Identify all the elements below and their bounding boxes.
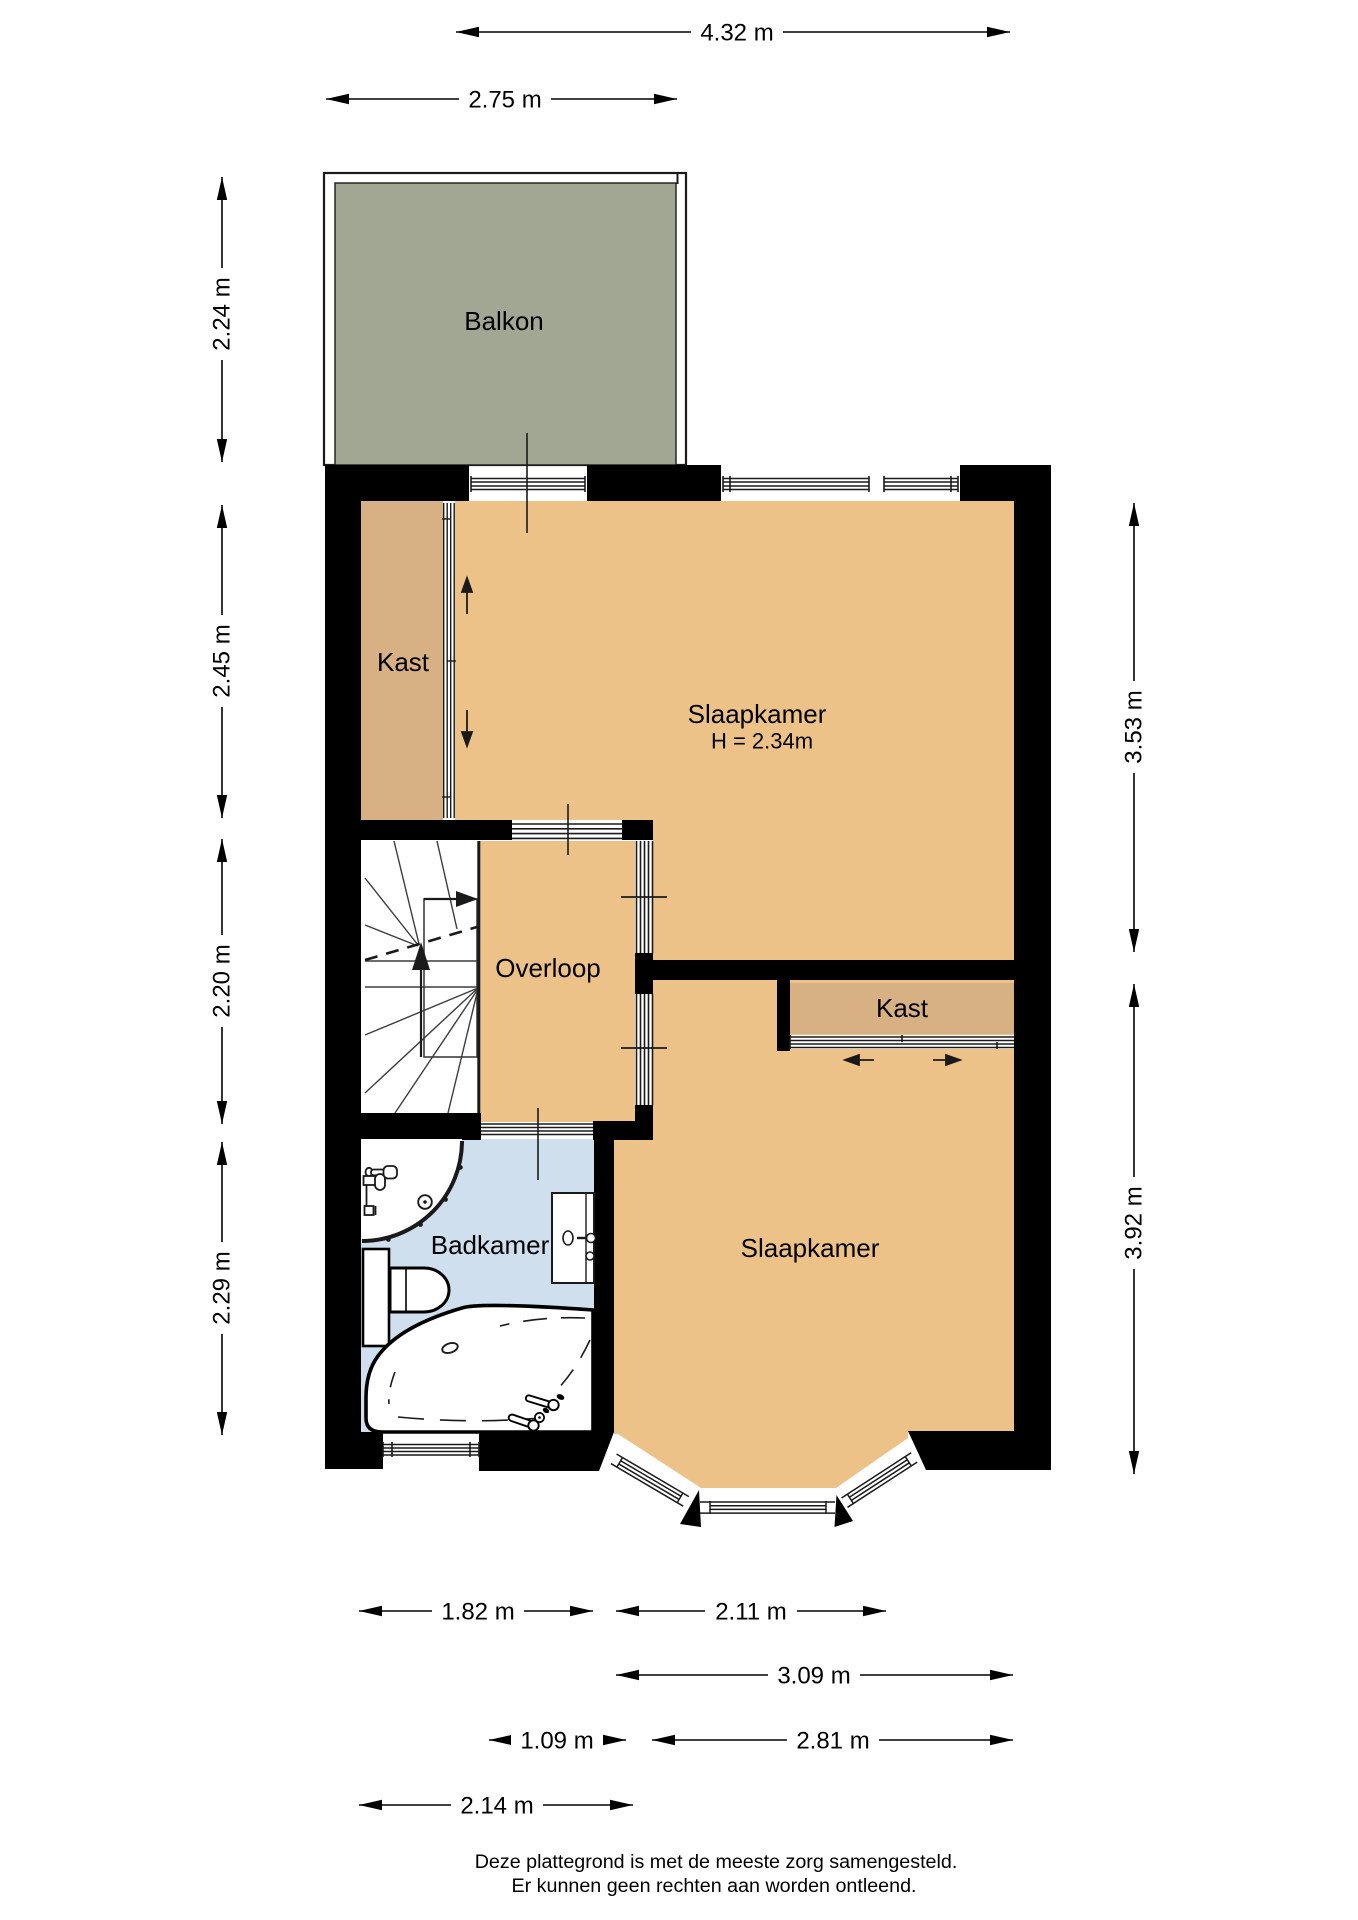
svg-text:Kast: Kast <box>377 647 430 677</box>
svg-text:Slaapkamer: Slaapkamer <box>741 1233 880 1263</box>
svg-text:Slaapkamer: Slaapkamer <box>688 699 827 729</box>
svg-text:Deze plattegrond is met de mee: Deze plattegrond is met de meeste zorg s… <box>475 1851 958 1873</box>
svg-text:Balkon: Balkon <box>464 306 544 336</box>
svg-text:4.32 m: 4.32 m <box>700 20 773 47</box>
svg-text:2.81 m: 2.81 m <box>796 1728 869 1755</box>
svg-text:2.14 m: 2.14 m <box>460 1793 533 1820</box>
svg-text:3.92 m: 3.92 m <box>1121 1186 1148 1259</box>
svg-text:3.53 m: 3.53 m <box>1121 690 1148 763</box>
svg-text:2.20 m: 2.20 m <box>209 944 236 1017</box>
svg-text:2.75 m: 2.75 m <box>468 87 541 114</box>
svg-text:1.82 m: 1.82 m <box>441 1599 514 1626</box>
svg-text:H = 2.34m: H = 2.34m <box>711 729 813 754</box>
svg-text:2.24 m: 2.24 m <box>209 277 236 350</box>
svg-text:1.09 m: 1.09 m <box>520 1728 593 1755</box>
svg-text:3.09 m: 3.09 m <box>777 1663 850 1690</box>
svg-text:2.11 m: 2.11 m <box>715 1599 787 1626</box>
svg-text:Er kunnen geen rechten aan wor: Er kunnen geen rechten aan worden ontlee… <box>512 1875 917 1897</box>
svg-text:Badkamer: Badkamer <box>431 1230 550 1260</box>
svg-text:Kast: Kast <box>876 993 929 1023</box>
svg-text:2.29 m: 2.29 m <box>209 1251 236 1324</box>
svg-text:2.45 m: 2.45 m <box>209 624 236 697</box>
svg-text:Overloop: Overloop <box>495 953 601 983</box>
